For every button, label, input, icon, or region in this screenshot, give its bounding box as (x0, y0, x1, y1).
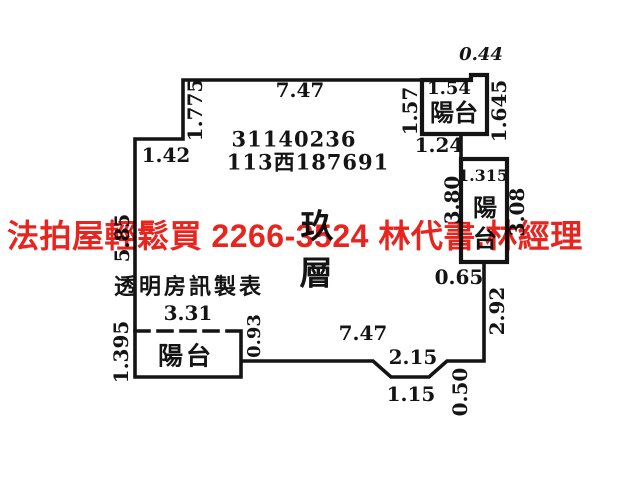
dim-top-balcony-below: 1.24 (415, 135, 464, 155)
stamp-number-line1: 31140236 (232, 129, 357, 150)
balcony-label-bottom: 陽台 (158, 344, 214, 369)
balcony-label-top: 陽台 (430, 101, 478, 125)
dim-top-width: 7.47 (276, 80, 325, 100)
dim-notch-lower: 1.15 (387, 384, 436, 404)
watermark-text: 法拍屋輕鬆買 2266-3524 林代書.林經理 (7, 220, 583, 252)
dim-top-left-height: 1.775 (185, 79, 205, 142)
stamp-number-line2: 113西187691 (227, 152, 390, 173)
floor-level-char-bottom: 層 (300, 257, 333, 290)
dim-notch-upper: 2.15 (389, 347, 438, 367)
dim-top-balcony-left: 1.57 (400, 87, 420, 136)
maker-note: 透明房訊製表 (114, 276, 264, 298)
dim-left-lower-height: 1.395 (111, 321, 131, 384)
dim-right-balcony-width: 1.315 (458, 168, 508, 184)
dim-top-balcony-width: 1.54 (427, 80, 471, 98)
dim-right-lower-height: 2.92 (487, 287, 507, 336)
balcony-label-right-char1: 陽 (473, 196, 497, 220)
dim-bottom-balcony-width: 3.31 (164, 303, 213, 323)
dim-bottom-width: 7.47 (339, 323, 388, 343)
dim-top-balcony-right: 1.645 (489, 80, 509, 143)
dim-right-jog: 0.65 (435, 267, 484, 287)
dim-bottom-balcony-right: 0.93 (246, 314, 264, 358)
dim-top-balcony-notch: 0.44 (459, 46, 503, 64)
dim-left-step: 1.42 (142, 145, 191, 165)
dim-notch-depth: 0.50 (450, 368, 470, 417)
floorplan-page: 7.47 1.42 1.54 0.44 1.24 1.315 0.65 3.31… (0, 0, 640, 480)
